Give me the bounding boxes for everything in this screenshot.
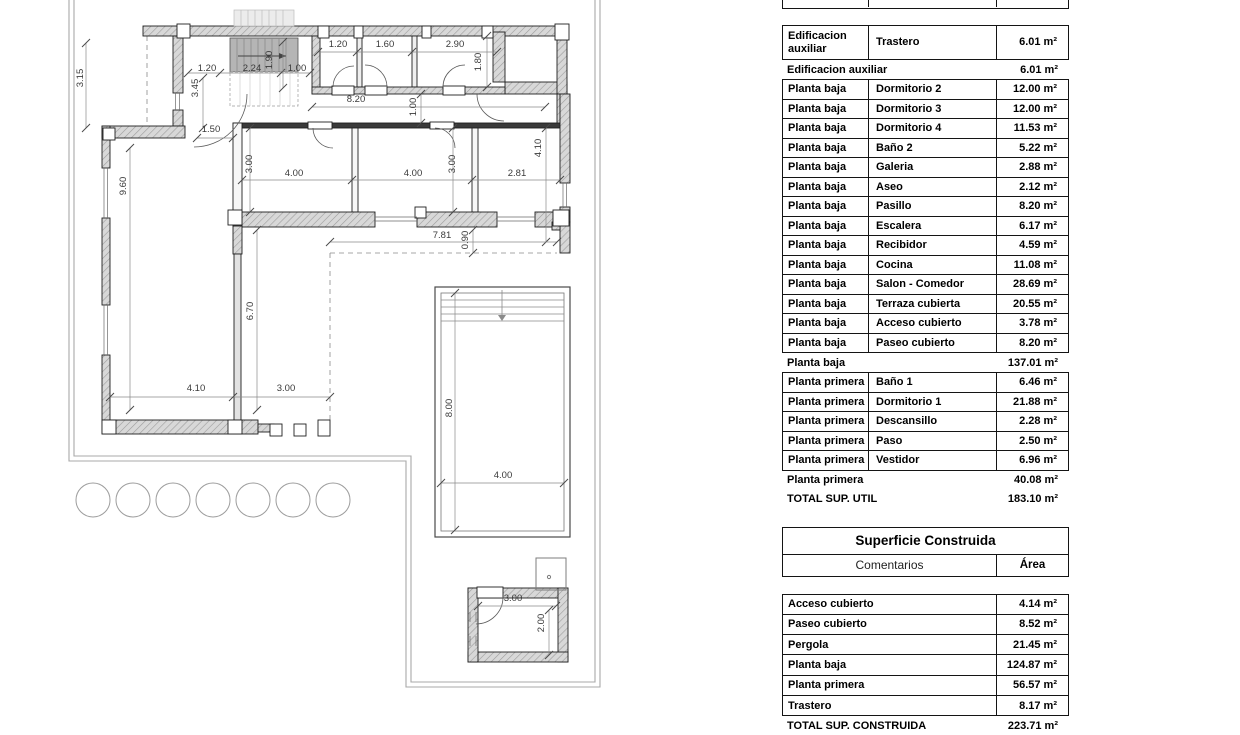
- table-cell: Planta primera: [783, 376, 868, 388]
- table-cell: 2.50 m²: [996, 432, 1068, 451]
- subtotal-label: Planta primera: [782, 474, 999, 486]
- subtotal-value: 40.08 m²: [999, 474, 1069, 486]
- dimension-label: 4.00: [494, 470, 513, 481]
- dimension-label: 3.00: [277, 383, 296, 394]
- table-cell: 6.17 m²: [996, 217, 1068, 236]
- dimension-label: 0.90: [460, 231, 471, 250]
- table-row: Planta primeraPaso2.50 m²: [783, 431, 1068, 451]
- table-cell: Recibidor: [868, 236, 996, 255]
- table-cell: Galeria: [868, 158, 996, 177]
- table-cell: Planta baja: [783, 181, 868, 193]
- table-cell: 56.57 m²: [996, 676, 1068, 695]
- table-cell: 11.53 m²: [996, 119, 1068, 138]
- table-row: Acceso cubierto4.14 m²: [783, 595, 1068, 614]
- table-cell: 11.08 m²: [996, 256, 1068, 275]
- table-group: Planta bajaDormitorio 212.00 m²Planta ba…: [782, 79, 1069, 353]
- dimension-label: 7.81: [433, 230, 452, 241]
- walls: [102, 26, 570, 662]
- superficie-util-header: Nivel Nombre Área: [782, 0, 1069, 9]
- trastero-porch: [536, 558, 566, 590]
- table-row: Planta primeraDormitorio 121.88 m²: [783, 392, 1068, 412]
- table-cell: Aseo: [868, 178, 996, 197]
- table-row: Planta baja124.87 m²: [783, 654, 1068, 674]
- dimension-label: 1.50: [202, 124, 221, 135]
- table-row: Planta bajaGaleria2.88 m²: [783, 157, 1068, 177]
- table-cell: Vestidor: [868, 451, 996, 470]
- table-cell: 12.00 m²: [996, 100, 1068, 119]
- table-cell: Planta baja: [783, 239, 868, 251]
- total-value: 223.71 m²: [999, 720, 1069, 732]
- table-cell: Paseo cubierto: [868, 334, 996, 353]
- table-cell: Paso: [868, 432, 996, 451]
- table-cell: Pasillo: [868, 197, 996, 216]
- table-row: Planta primeraDescansillo2.28 m²: [783, 411, 1068, 431]
- table-row: Planta bajaSalon - Comedor28.69 m²: [783, 274, 1068, 294]
- table-cell: Acceso cubierto: [783, 598, 996, 610]
- table-row: Paseo cubierto8.52 m²: [783, 614, 1068, 634]
- dimension-label: 4.00: [285, 168, 304, 179]
- subtotal-value: 6.01 m²: [999, 64, 1069, 76]
- dimension-label: 4.10: [533, 139, 544, 158]
- table-cell: 2.28 m²: [996, 412, 1068, 431]
- area-tables-panel: Nivel Nombre Área Edificacion auxiliarTr…: [782, 0, 1069, 735]
- table-title: Superficie Construida: [783, 528, 1068, 555]
- table-cell: Planta baja: [783, 259, 868, 271]
- table-cell: 8.17 m²: [996, 696, 1068, 715]
- table-cell: 6.46 m²: [996, 373, 1068, 392]
- table-cell: Planta primera: [783, 415, 868, 427]
- table-row: Planta bajaCocina11.08 m²: [783, 255, 1068, 275]
- dimension-label: 1.60: [376, 39, 395, 50]
- dimension-label: 1.20: [329, 39, 348, 50]
- table-cell: Edificacion auxiliar: [783, 30, 868, 54]
- table-cell: 4.14 m²: [996, 595, 1068, 614]
- table-group: Planta primeraBaño 16.46 m²Planta primer…: [782, 372, 1069, 471]
- dimension-label: 1.00: [408, 98, 419, 117]
- subtotal-row: Edificacion auxiliar6.01 m²: [782, 60, 1069, 79]
- table-cell: Acceso cubierto: [868, 314, 996, 333]
- table-cell: Dormitorio 4: [868, 119, 996, 138]
- table-cell: Dormitorio 2: [868, 80, 996, 99]
- table-cell: Planta primera: [783, 454, 868, 466]
- dimension-label: 4.00: [404, 168, 423, 179]
- garden-circles: [76, 483, 350, 517]
- column-header-nombre: Nombre: [868, 0, 996, 7]
- table-cell: 20.55 m²: [996, 295, 1068, 314]
- table-cell: Planta baja: [783, 200, 868, 212]
- table-row: Planta bajaTerraza cubierta20.55 m²: [783, 294, 1068, 314]
- superficie-construida-header: Superficie Construida Comentarios Área: [782, 527, 1069, 577]
- dimension-label: 8.20: [347, 94, 366, 105]
- table-cell: Terraza cubierta: [868, 295, 996, 314]
- table-cell: 5.22 m²: [996, 139, 1068, 158]
- total-label: TOTAL SUP. CONSTRUIDA: [782, 720, 999, 732]
- dimension-label: 2.90: [446, 39, 465, 50]
- dimension-label: 3.00: [244, 155, 255, 174]
- table-cell: 6.96 m²: [996, 451, 1068, 470]
- table-cell: Baño 2: [868, 139, 996, 158]
- subtotal-row: Planta primera40.08 m²: [782, 471, 1069, 490]
- table-cell: Planta baja: [783, 659, 996, 671]
- table-cell: Planta baja: [783, 220, 868, 232]
- table-row: Trastero8.17 m²: [783, 695, 1068, 715]
- table-cell: Salon - Comedor: [868, 275, 996, 294]
- table-row: Planta bajaEscalera6.17 m²: [783, 216, 1068, 236]
- table-cell: 12.00 m²: [996, 80, 1068, 99]
- table-group: Acceso cubierto4.14 m²Paseo cubierto8.52…: [782, 594, 1069, 717]
- dimension-label: 1.90: [264, 51, 275, 70]
- table-cell: Planta baja: [783, 161, 868, 173]
- table-cell: Planta primera: [783, 435, 868, 447]
- dimension-label: 9.60: [118, 177, 129, 196]
- table-cell: 28.69 m²: [996, 275, 1068, 294]
- column-header-comentarios: Comentarios: [783, 558, 996, 572]
- table-cell: Trastero: [783, 700, 996, 712]
- superficie-construida-table: Acceso cubierto4.14 m²Paseo cubierto8.52…: [782, 594, 1069, 735]
- table-cell: 21.45 m²: [996, 635, 1068, 654]
- subtotal-label: Edificacion auxiliar: [782, 64, 999, 76]
- table-cell: Planta primera: [783, 396, 868, 408]
- table-cell: Trastero: [868, 26, 996, 59]
- subtotal-label: Planta baja: [782, 357, 999, 369]
- column-header-area: Área: [996, 555, 1068, 576]
- table-row: Planta bajaAcceso cubierto3.78 m²: [783, 313, 1068, 333]
- table-row: Planta bajaPaseo cubierto8.20 m²: [783, 333, 1068, 353]
- dimension-label: 2.00: [536, 614, 547, 633]
- dimension-label: 3.00: [504, 593, 523, 604]
- dimension-label: 2.81: [508, 168, 527, 179]
- table-cell: Escalera: [868, 217, 996, 236]
- table-cell: 21.88 m²: [996, 393, 1068, 412]
- floor-plan-drawing: 3.151.203.452.241.901.001.201.602.901.80…: [0, 0, 780, 720]
- table-row: Planta bajaPasillo8.20 m²: [783, 196, 1068, 216]
- table-cell: Baño 1: [868, 373, 996, 392]
- table-cell: Cocina: [868, 256, 996, 275]
- table-cell: Planta primera: [783, 679, 996, 691]
- table-cell: 2.88 m²: [996, 158, 1068, 177]
- column-header-area: Área: [996, 0, 1068, 7]
- table-row: Planta bajaDormitorio 212.00 m²: [783, 80, 1068, 99]
- windows: [104, 93, 567, 646]
- table-cell: Planta baja: [783, 142, 868, 154]
- table-row: Planta bajaAseo2.12 m²: [783, 177, 1068, 197]
- table-cell: Dormitorio 1: [868, 393, 996, 412]
- table-cell: Planta baja: [783, 83, 868, 95]
- dimension-label: 1.20: [198, 63, 217, 74]
- table-row: Planta bajaDormitorio 411.53 m²: [783, 118, 1068, 138]
- table-row: Planta bajaBaño 25.22 m²: [783, 138, 1068, 158]
- floor-plan-sheet: 3.151.203.452.241.901.001.201.602.901.80…: [0, 0, 1240, 720]
- table-cell: Descansillo: [868, 412, 996, 431]
- column-header-nivel: Nivel: [783, 0, 868, 4]
- subtotal-value: 137.01 m²: [999, 357, 1069, 369]
- table-cell: 3.78 m²: [996, 314, 1068, 333]
- table-row: Planta primeraBaño 16.46 m²: [783, 373, 1068, 392]
- table-cell: Paseo cubierto: [783, 618, 996, 630]
- table-row: Planta bajaDormitorio 312.00 m²: [783, 99, 1068, 119]
- table-cell: 2.12 m²: [996, 178, 1068, 197]
- dimension-label: 1.80: [473, 53, 484, 72]
- table-row: Pergola21.45 m²: [783, 634, 1068, 654]
- total-label: TOTAL SUP. UTIL: [782, 493, 999, 505]
- table-cell: Planta baja: [783, 337, 868, 349]
- table-cell: 6.01 m²: [996, 26, 1068, 59]
- dimension-label: 1.00: [288, 63, 307, 74]
- table-cell: Planta baja: [783, 122, 868, 134]
- table-cell: Planta baja: [783, 317, 868, 329]
- table-row: Planta primeraVestidor6.96 m²: [783, 450, 1068, 470]
- dimension-label: 6.70: [245, 302, 256, 321]
- table-cell: Planta baja: [783, 103, 868, 115]
- wall-posts: [102, 24, 569, 598]
- table-row: Edificacion auxiliarTrastero6.01 m²: [783, 26, 1068, 59]
- table-cell: Planta baja: [783, 278, 868, 290]
- subtotal-row: Planta baja137.01 m²: [782, 353, 1069, 372]
- table-cell: 8.52 m²: [996, 615, 1068, 634]
- table-cell: 4.59 m²: [996, 236, 1068, 255]
- table-cell: 8.20 m²: [996, 334, 1068, 353]
- total-row: TOTAL SUP. UTIL183.10 m²: [782, 490, 1069, 509]
- table-cell: Dormitorio 3: [868, 100, 996, 119]
- dimension-label: 3.00: [447, 155, 458, 174]
- table-cell: Pergola: [783, 639, 996, 651]
- superficie-util-table: Edificacion auxiliarTrastero6.01 m²Edifi…: [782, 25, 1069, 509]
- table-row: Planta primera56.57 m²: [783, 675, 1068, 695]
- dimension-label: 4.10: [187, 383, 206, 394]
- total-row: TOTAL SUP. CONSTRUIDA223.71 m²: [782, 716, 1069, 735]
- property-boundary: [69, 0, 600, 687]
- table-row: Planta bajaRecibidor4.59 m²: [783, 235, 1068, 255]
- dimension-label: 8.00: [444, 399, 455, 418]
- total-value: 183.10 m²: [999, 493, 1069, 505]
- table-cell: 8.20 m²: [996, 197, 1068, 216]
- table-group: Edificacion auxiliarTrastero6.01 m²: [782, 25, 1069, 60]
- dimension-label: 3.15: [75, 69, 86, 88]
- table-cell: Planta baja: [783, 298, 868, 310]
- dimension-label: 2.24: [243, 63, 262, 74]
- table-cell: 124.87 m²: [996, 655, 1068, 674]
- dimension-label: 3.45: [190, 79, 201, 98]
